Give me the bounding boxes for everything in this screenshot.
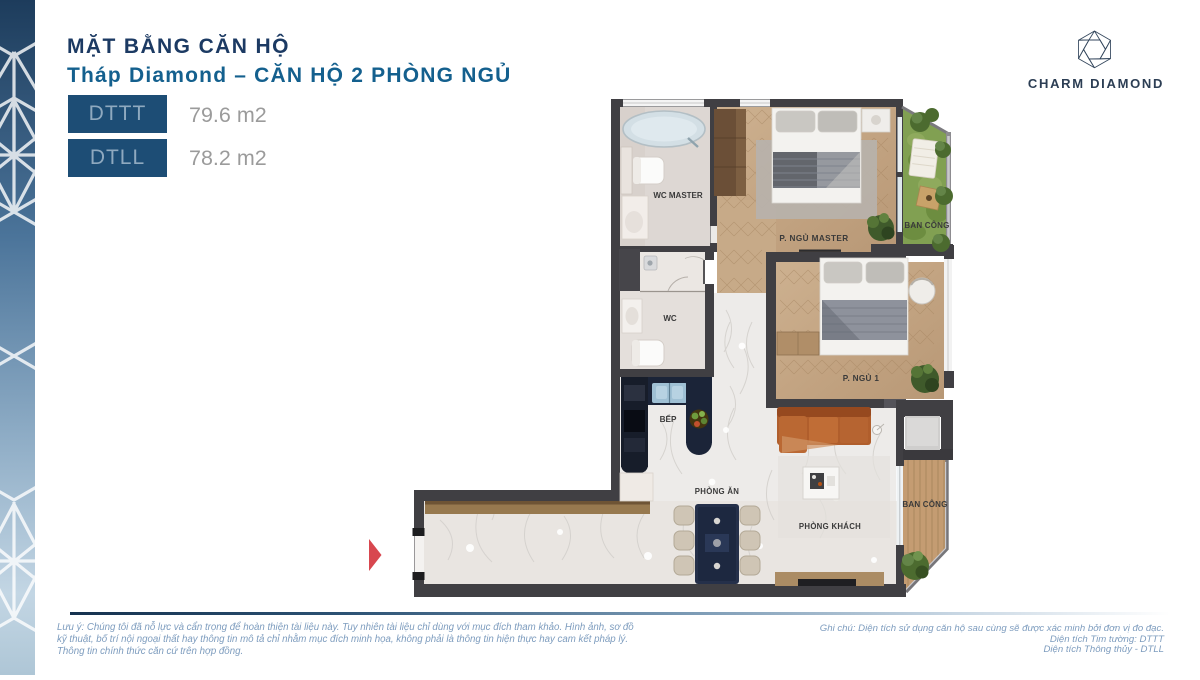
svg-text:WC MASTER: WC MASTER xyxy=(653,191,703,200)
svg-text:WC: WC xyxy=(663,314,677,323)
svg-text:BẾP: BẾP xyxy=(660,414,677,424)
svg-text:P. NGỦ MASTER: P. NGỦ MASTER xyxy=(779,232,848,243)
svg-text:PHÒNG KHÁCH: PHÒNG KHÁCH xyxy=(799,522,861,531)
svg-text:PHÒNG ĂN: PHÒNG ĂN xyxy=(695,487,739,496)
svg-text:BAN CÔNG: BAN CÔNG xyxy=(902,500,947,509)
svg-text:P. NGỦ 1: P. NGỦ 1 xyxy=(843,372,880,383)
svg-text:BAN CÔNG: BAN CÔNG xyxy=(904,221,949,230)
